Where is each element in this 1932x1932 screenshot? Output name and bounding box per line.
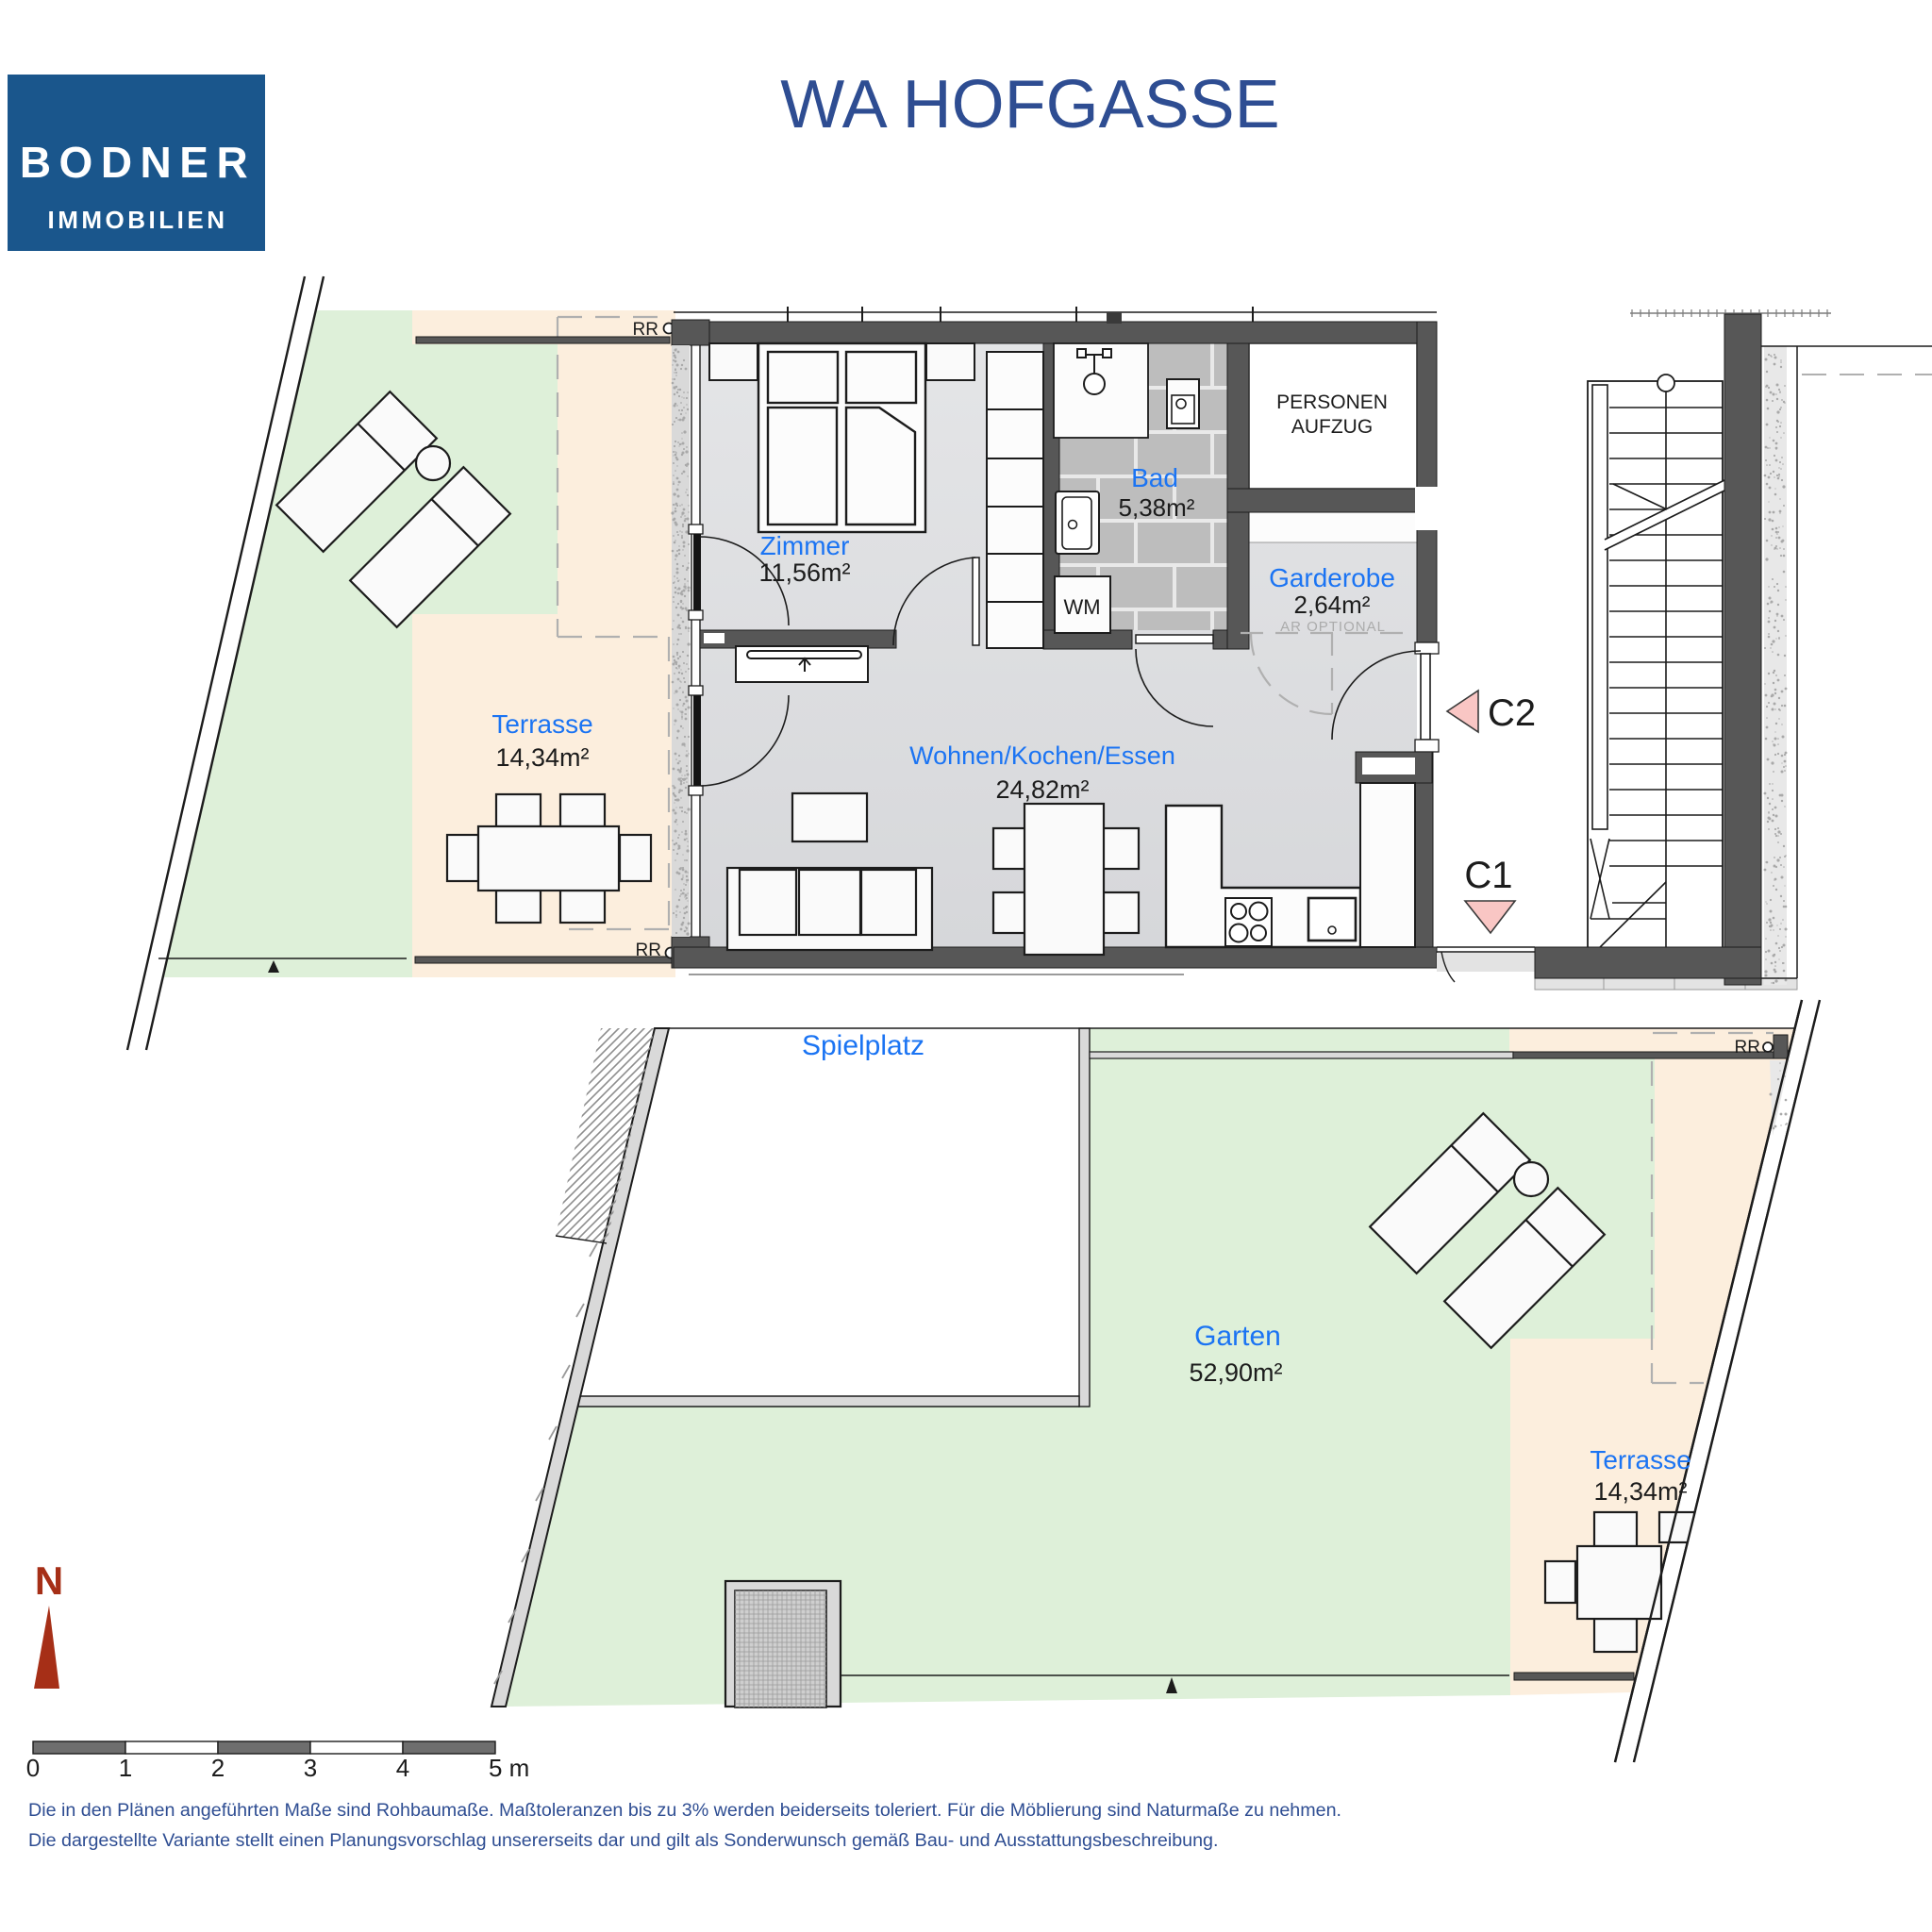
svg-text:52,90m²: 52,90m² <box>1189 1358 1282 1387</box>
svg-text:WM: WM <box>1063 595 1100 619</box>
svg-text:3: 3 <box>304 1754 317 1782</box>
svg-text:14,34m²: 14,34m² <box>495 743 589 772</box>
svg-text:14,34m²: 14,34m² <box>1593 1477 1687 1506</box>
svg-text:RR: RR <box>1735 1038 1760 1058</box>
svg-text:AUFZUG: AUFZUG <box>1291 416 1373 438</box>
svg-text:Garten: Garten <box>1194 1321 1281 1352</box>
svg-text:24,82m²: 24,82m² <box>995 775 1089 804</box>
svg-text:C1: C1 <box>1464 855 1512 896</box>
svg-text:Bad: Bad <box>1131 463 1178 492</box>
svg-text:11,56m²: 11,56m² <box>758 558 850 587</box>
svg-text:2: 2 <box>211 1754 225 1782</box>
svg-text:5,38m²: 5,38m² <box>1119 493 1195 522</box>
svg-text:5 m: 5 m <box>489 1754 529 1782</box>
svg-text:Wohnen/Kochen/Essen: Wohnen/Kochen/Essen <box>909 741 1175 770</box>
svg-text:AR OPTIONAL: AR OPTIONAL <box>1280 619 1386 635</box>
svg-text:Zimmer: Zimmer <box>760 531 850 560</box>
svg-text:Terrasse: Terrasse <box>491 709 592 739</box>
svg-text:Die dargestellte Variante stel: Die dargestellte Variante stellt einen P… <box>28 1830 1218 1851</box>
svg-text:BODNER: BODNER <box>20 138 256 187</box>
svg-text:Garderobe: Garderobe <box>1269 563 1395 592</box>
svg-text:C2: C2 <box>1488 692 1536 734</box>
svg-text:RR: RR <box>636 941 661 960</box>
svg-text:IMMOBILIEN: IMMOBILIEN <box>48 206 228 234</box>
svg-text:1: 1 <box>119 1754 132 1782</box>
svg-text:2,64m²: 2,64m² <box>1294 591 1371 619</box>
svg-text:Terrasse: Terrasse <box>1590 1445 1690 1474</box>
svg-text:RR: RR <box>633 320 658 340</box>
svg-text:0: 0 <box>26 1754 40 1782</box>
svg-text:N: N <box>35 1558 63 1603</box>
svg-text:Die in den Plänen angeführten: Die in den Plänen angeführten Maße sind … <box>28 1800 1341 1821</box>
svg-text:PERSONEN: PERSONEN <box>1276 391 1388 413</box>
svg-text:4: 4 <box>396 1754 409 1782</box>
svg-text:WA HOFGASSE: WA HOFGASSE <box>780 67 1279 142</box>
svg-text:Spielplatz: Spielplatz <box>802 1030 924 1061</box>
